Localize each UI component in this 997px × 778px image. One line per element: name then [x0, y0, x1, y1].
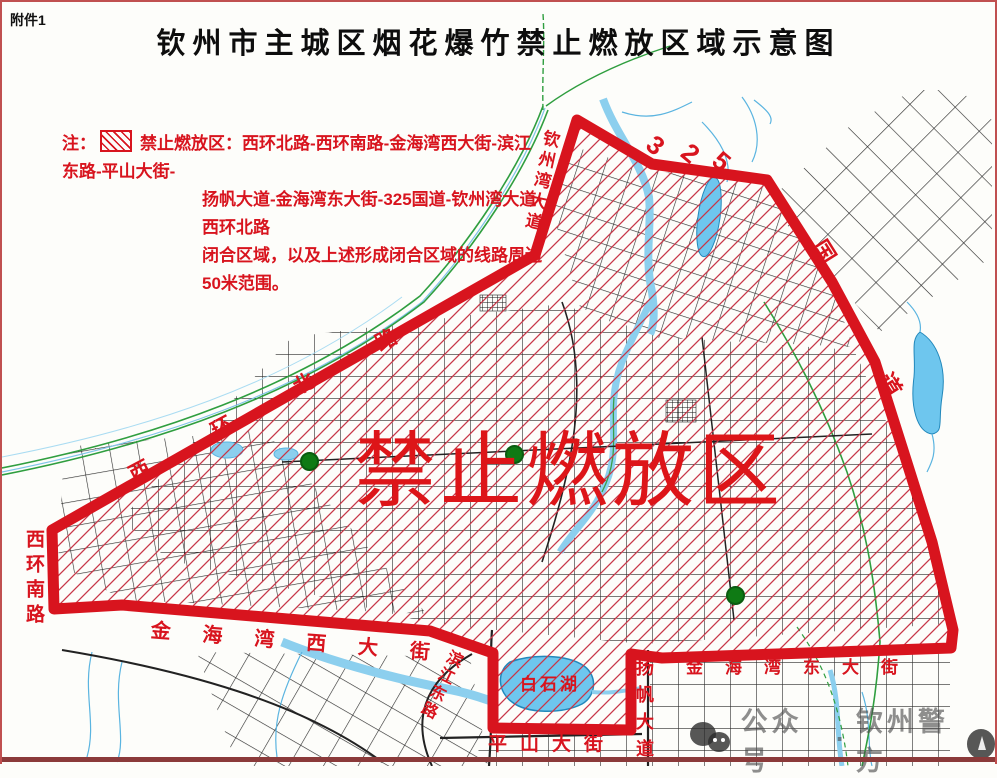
legend-line-1: 注：禁止燃放区：西环北路-西环南路-金海湾西大街-滨江东路-平山大街- — [62, 130, 542, 186]
green-route-shield-icon — [726, 586, 745, 605]
legend: 注：禁止燃放区：西环北路-西环南路-金海湾西大街-滨江东路-平山大街- 扬帆大道… — [62, 130, 542, 298]
road-label-yangfan-dadao: 扬帆大道 — [631, 658, 657, 766]
frame-bottom-border — [2, 757, 995, 762]
watermark-text-right: 钦州警方 — [856, 700, 974, 778]
green-route-shield-icon — [300, 452, 319, 471]
legend-text-2: 扬帆大道-金海湾东大街-325国道-钦州湾大道-西环北路 — [62, 186, 542, 242]
police-badge-icon — [967, 729, 995, 759]
road-label-pingshan-dajie: 平山大街 — [488, 729, 616, 756]
city-map-canvas — [2, 2, 997, 766]
lake-label-baishihu: 白石湖 — [520, 670, 580, 695]
legend-text-3: 闭合区域，以及上述形成闭合区域的线路周边50米范围。 — [62, 242, 542, 298]
watermark-text-left: 公众号 — [741, 700, 829, 778]
chat-bubbles-icon — [690, 722, 734, 756]
hatch-swatch-icon — [100, 130, 132, 152]
watermark-separator: · — [836, 724, 849, 755]
watermark: 公众号 · 钦州警方 — [690, 700, 995, 778]
fireworks-ban-map-page: { "attachment_label": "附件1", "title": "钦… — [0, 0, 997, 764]
prohibition-zone-title: 禁止燃放区 — [354, 404, 784, 523]
legend-text-1: 禁止燃放区：西环北路-西环南路-金海湾西大街-滨江东路-平山大街- — [62, 134, 531, 181]
road-label-jinhaiwan-dong-dajie: 金海湾东大街 — [686, 653, 920, 678]
legend-prefix: 注： — [62, 134, 96, 153]
page-title: 钦州市主城区烟花爆竹禁止燃放区域示意图 — [2, 20, 995, 62]
road-label-xihuan-nan-lu: 西环南路 — [20, 529, 47, 629]
